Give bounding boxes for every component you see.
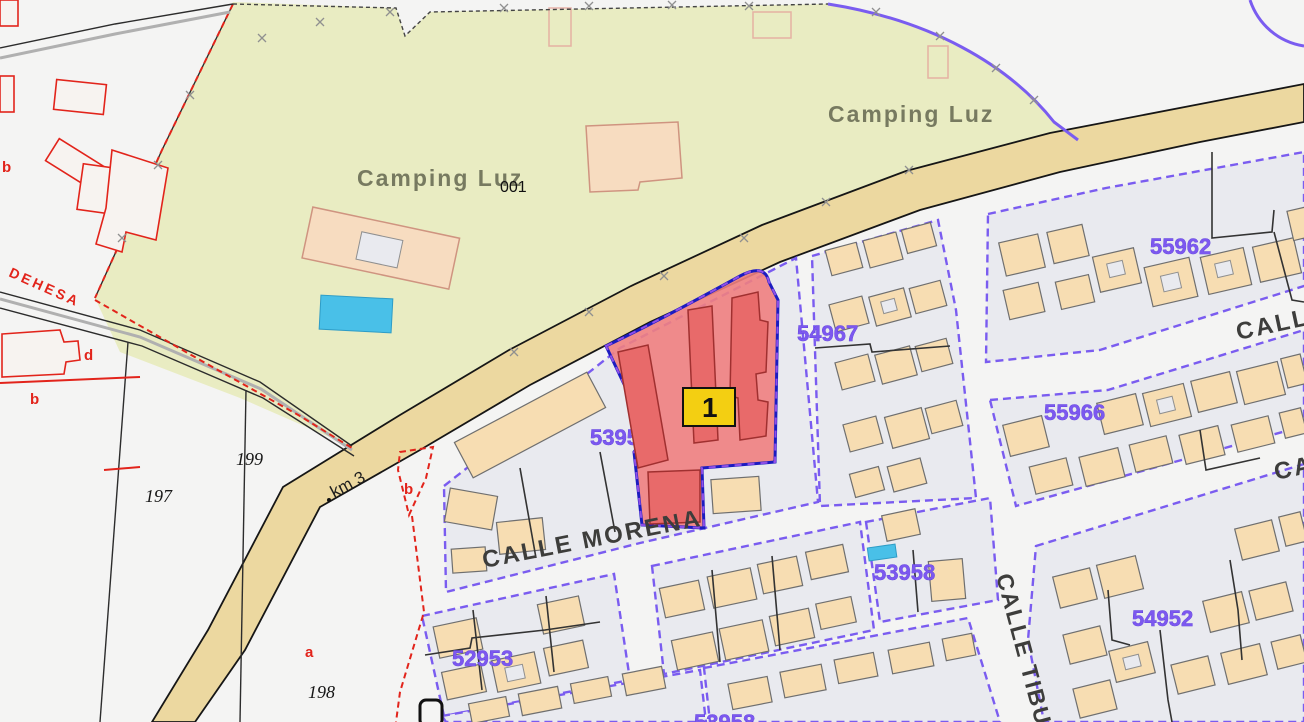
building-court: [1215, 260, 1234, 277]
building: [0, 76, 14, 112]
cadastral-map[interactable]: 53953 1: [0, 0, 1304, 722]
sub-letter-d: d: [84, 347, 93, 364]
parcel-number-bottom-partial: 53958: [694, 710, 755, 722]
sub-letter-b-road: b: [404, 481, 413, 498]
sub-letter-b-left: b: [2, 159, 11, 176]
camping-label-mid: Camping Luz: [357, 165, 523, 191]
building: [711, 476, 761, 513]
rural-parcel-198: 198: [308, 682, 335, 702]
parcel-number-53958: 53958: [874, 560, 935, 585]
swimming-pool: [319, 295, 393, 333]
building-court: [1160, 272, 1181, 292]
sub-letter-b-lower: b: [30, 391, 39, 408]
sub-letter-a: a: [305, 644, 314, 661]
rural-parcel-199: 199: [236, 449, 263, 469]
rural-parcel-197: 197: [145, 486, 173, 506]
parcel-number-54952: 54952: [1132, 606, 1193, 631]
selection-badge-number: 1: [702, 392, 718, 423]
map-canvas[interactable]: 53953 1: [0, 0, 1304, 722]
selection-badge: 1: [683, 388, 735, 426]
building-court: [1107, 260, 1126, 277]
building: [0, 0, 18, 26]
km-dot: [327, 498, 331, 502]
building: [54, 79, 107, 114]
parcel-number-55962: 55962: [1150, 234, 1211, 259]
parcel-number-52953: 52953: [452, 646, 513, 671]
camping-code-label: 001: [500, 179, 527, 196]
camping-label-top: Camping Luz: [828, 101, 994, 127]
parcel-number-54967: 54967: [797, 321, 858, 346]
parcel-number-55966: 55966: [1044, 400, 1105, 425]
